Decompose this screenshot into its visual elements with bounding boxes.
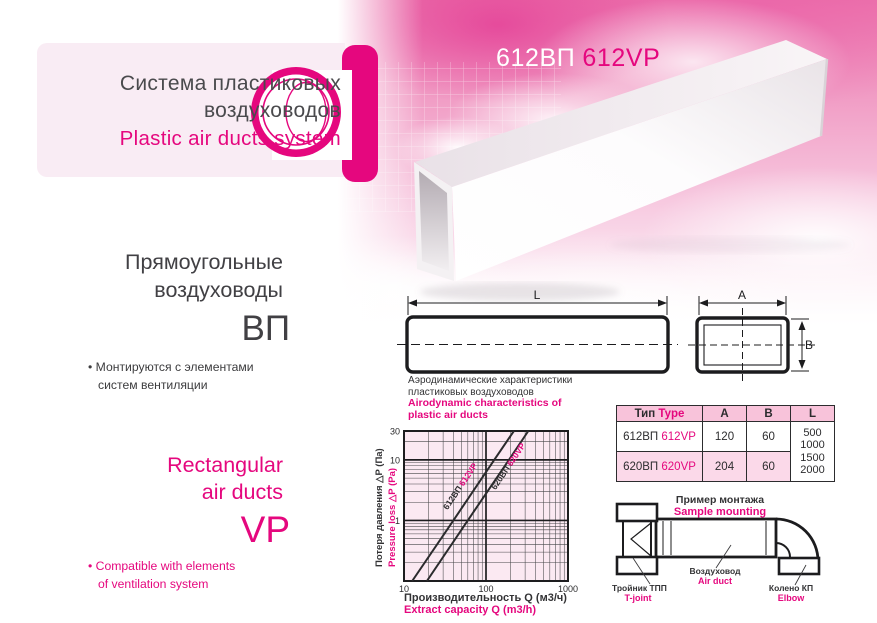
cell-type-620: 620ВП 620VP xyxy=(617,452,703,482)
table-row: 612ВП 612VP 120 60 500 1000 1500 2000 xyxy=(617,422,835,452)
dimension-drawing: L A B xyxy=(395,288,825,386)
en-bullet-line1: • Compatible with elements xyxy=(88,559,235,573)
bullet-dot: • xyxy=(88,559,92,573)
ru-series-code: ВП xyxy=(241,309,290,349)
cell-b-612: 60 xyxy=(747,422,791,452)
system-title-ru-line2: воздуховодов xyxy=(204,99,341,123)
ru-heading-line2: воздуховоды xyxy=(154,278,283,303)
cell-l-values: 500 1000 1500 2000 xyxy=(791,422,835,482)
col-type: Тип Type xyxy=(617,406,703,422)
chart-xlabel-en: Extract capacity Q (m3/h) xyxy=(404,604,536,616)
cell-b-620: 60 xyxy=(747,452,791,482)
product-code-label: 612ВП612VP xyxy=(496,44,660,73)
air-duct-label: Воздуховод Air duct xyxy=(688,567,742,587)
aero-chart-svg: 30101101001000 xyxy=(375,420,590,598)
col-a: A xyxy=(703,406,747,422)
chart-ylabel-en: Pressure loss △P (Pa) xyxy=(387,468,398,567)
en-bullet-line2: of ventilation system xyxy=(98,577,208,591)
bullet-dot: • xyxy=(88,360,92,374)
dim-label-B: B xyxy=(805,338,813,352)
spec-table: Тип Type A B L 612ВП 612VP 120 60 500 10… xyxy=(616,405,835,482)
system-title-ru-line1: Система пластиковых xyxy=(120,72,341,96)
col-b: B xyxy=(747,406,791,422)
product-code-ru: 612ВП xyxy=(496,44,575,72)
spec-table-header-row: Тип Type A B L xyxy=(617,406,835,422)
cell-type-612: 612ВП 612VP xyxy=(617,422,703,452)
en-heading-line1: Rectangular xyxy=(167,453,283,478)
chart-ylabel-ru: Потеря давления △P (Па) xyxy=(374,448,385,567)
svg-text:30: 30 xyxy=(390,427,400,437)
ru-heading-line1: Прямоугольные xyxy=(125,250,283,275)
cell-a-612: 120 xyxy=(703,422,747,452)
chart-title-en-line1: Airodynamic characteristics of xyxy=(408,398,572,410)
system-title-en: Plastic air ducts system xyxy=(120,127,341,151)
chart-title-block: Аэродинамические характеристики пластико… xyxy=(408,375,572,421)
ru-bullet-line1: • Монтируются с элементами xyxy=(88,360,254,374)
elbow-label: Колено КП Elbow xyxy=(766,584,816,604)
en-heading-line2: air ducts xyxy=(202,480,283,505)
dim-label-A: A xyxy=(738,288,746,302)
chart-xlabel-ru: Производительность Q (м3/ч) xyxy=(404,592,567,604)
dim-label-L: L xyxy=(534,288,541,302)
cell-a-620: 204 xyxy=(703,452,747,482)
chart-title-ru-line1: Аэродинамические характеристики xyxy=(408,375,572,387)
col-l: L xyxy=(791,406,835,422)
product-code-en: 612VP xyxy=(582,44,660,72)
catalog-page: Система пластиковых воздуховодов Plastic… xyxy=(0,0,877,623)
ru-bullet-line2: систем вентиляции xyxy=(98,378,208,392)
svg-text:10: 10 xyxy=(390,455,400,465)
en-series-code: VP xyxy=(241,509,290,551)
tjoint-label: Тройник ТПП T-joint xyxy=(612,584,664,604)
